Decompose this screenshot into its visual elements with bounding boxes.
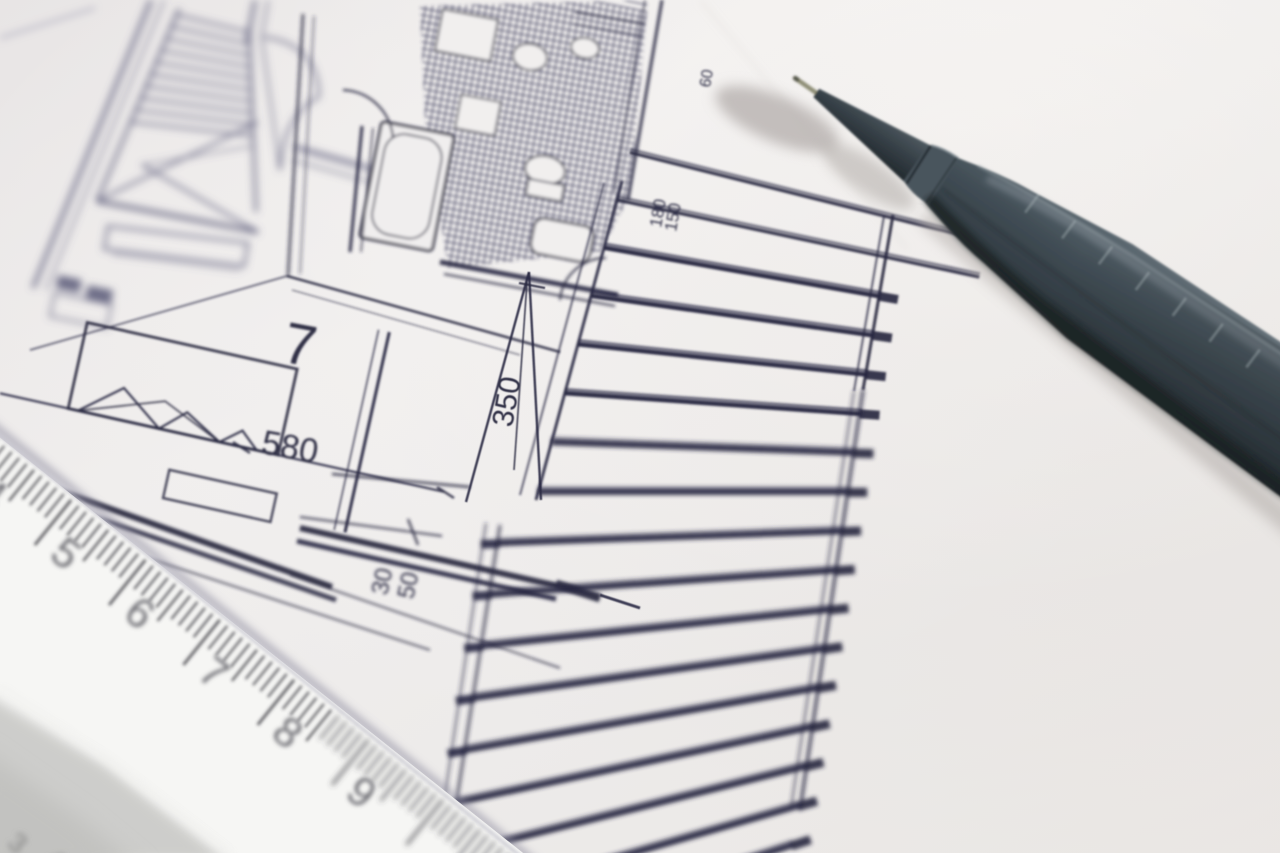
svg-text:60: 60 xyxy=(697,68,717,89)
svg-text:50: 50 xyxy=(392,570,424,602)
